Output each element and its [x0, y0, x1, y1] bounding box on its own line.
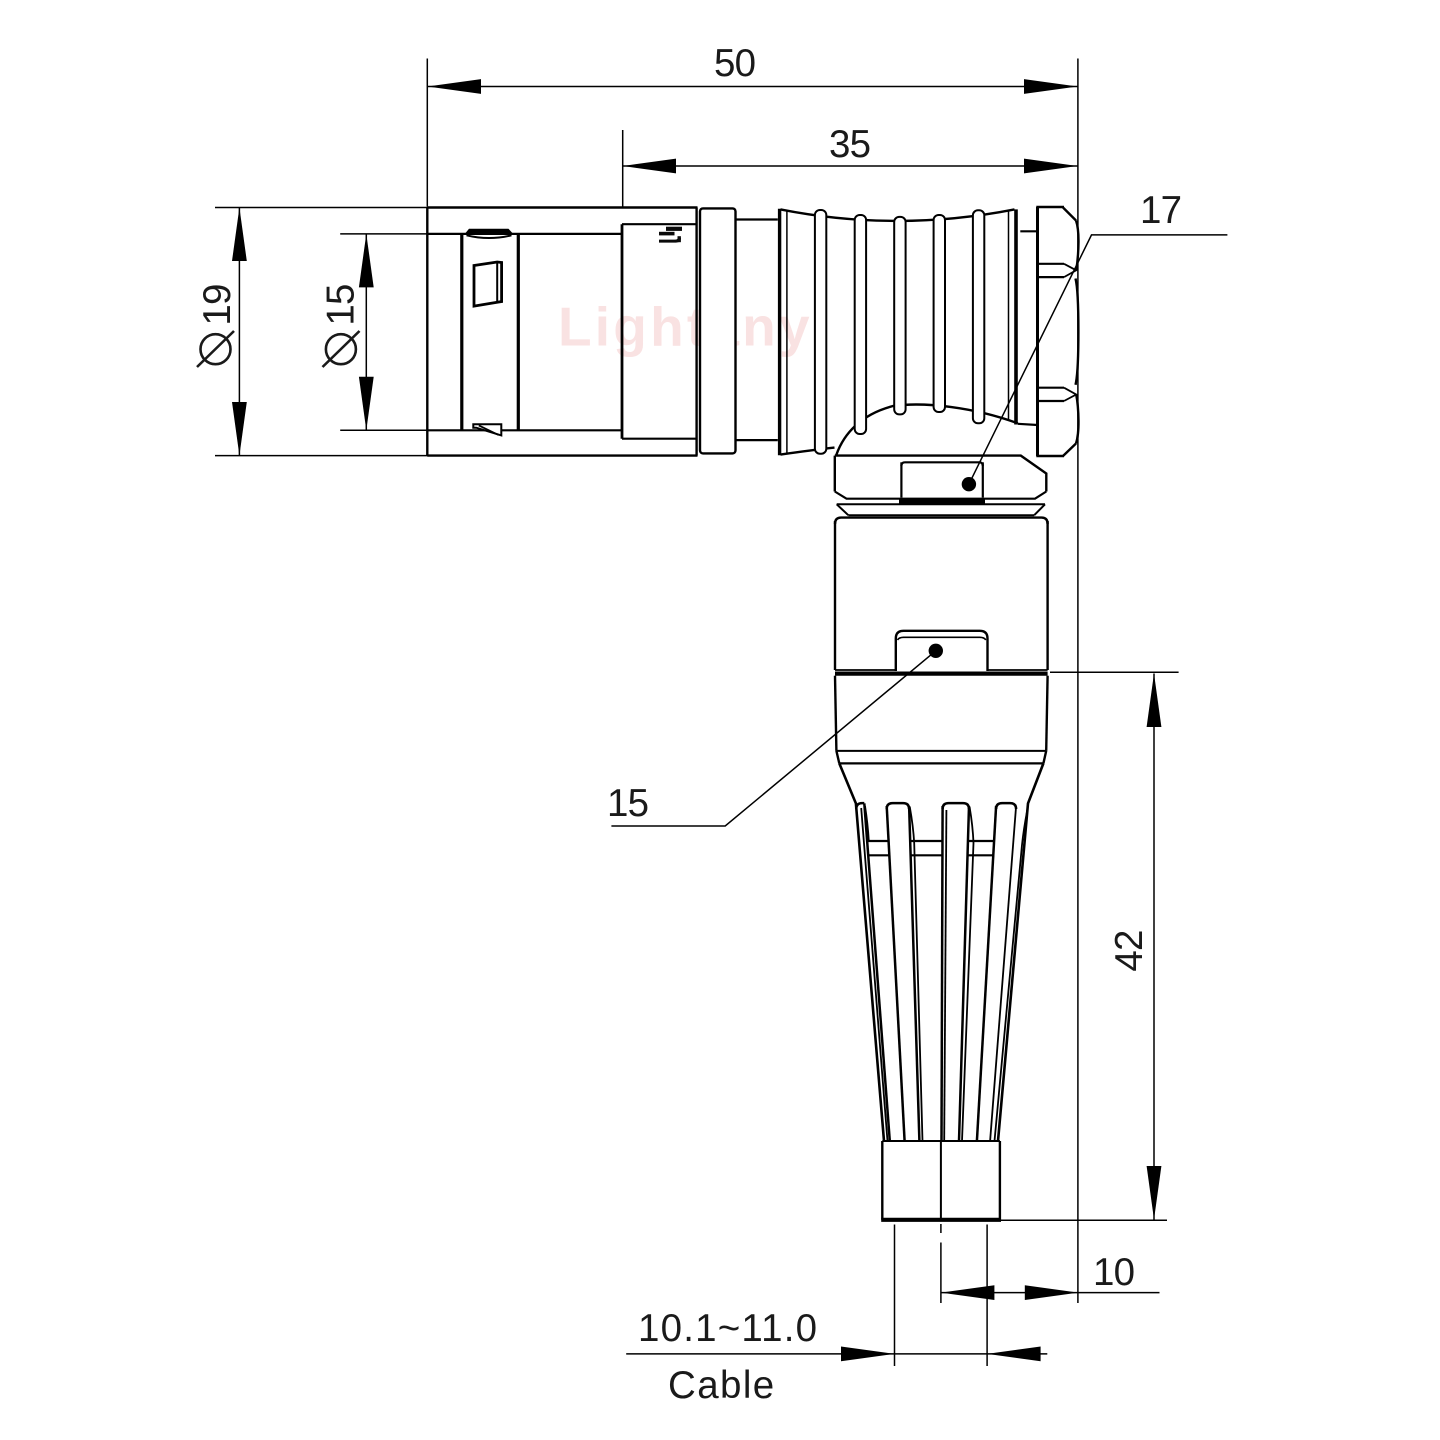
svg-text:Lightany: Lightany: [558, 296, 813, 358]
svg-text:35: 35: [829, 123, 870, 166]
svg-text:10.1~11.0: 10.1~11.0: [638, 1307, 818, 1350]
svg-text:19: 19: [196, 284, 239, 325]
svg-text:17: 17: [1140, 189, 1181, 232]
svg-text:Cable: Cable: [668, 1364, 776, 1407]
svg-text:42: 42: [1108, 930, 1151, 971]
svg-text:15: 15: [320, 284, 363, 325]
svg-text:10: 10: [1093, 1251, 1134, 1294]
svg-text:15: 15: [607, 782, 648, 825]
svg-text:50: 50: [714, 42, 755, 85]
